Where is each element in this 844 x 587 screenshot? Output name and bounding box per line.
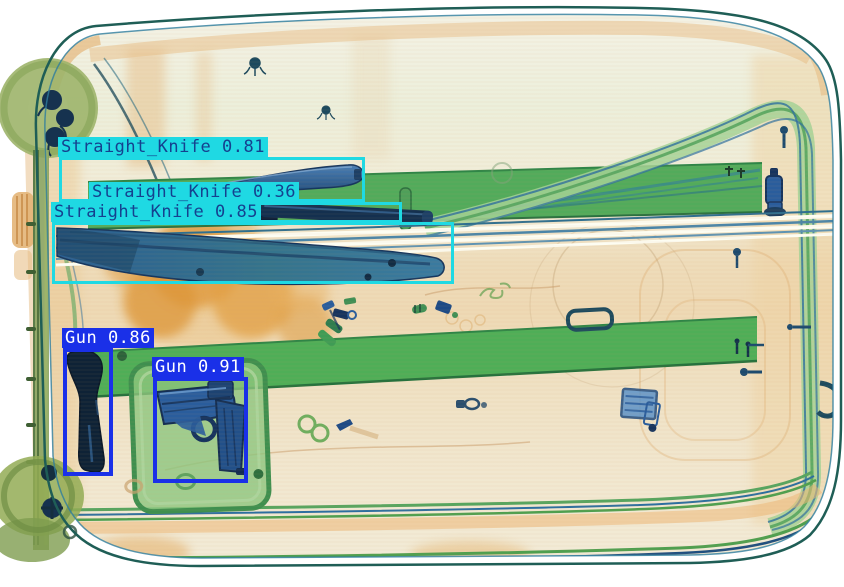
detection-label-straight_knife-0.85: Straight_Knife 0.85: [51, 202, 261, 222]
detection-label-gun-0.86: Gun 0.86: [62, 328, 154, 348]
detection-label-straight_knife-0.36: Straight_Knife 0.36: [89, 182, 299, 202]
detection-label-gun-0.91: Gun 0.91: [152, 357, 244, 377]
detection-box-gun-0.91: [153, 377, 248, 483]
detection-box-straight_knife-0.85: [52, 222, 454, 284]
detections-layer: Straight_Knife 0.81Straight_Knife 0.36St…: [0, 0, 844, 587]
detection-box-gun-0.86: [63, 348, 113, 476]
screenshot-root: Straight_Knife 0.81Straight_Knife 0.36St…: [0, 0, 844, 587]
detection-label-straight_knife-0.81: Straight_Knife 0.81: [58, 137, 268, 157]
